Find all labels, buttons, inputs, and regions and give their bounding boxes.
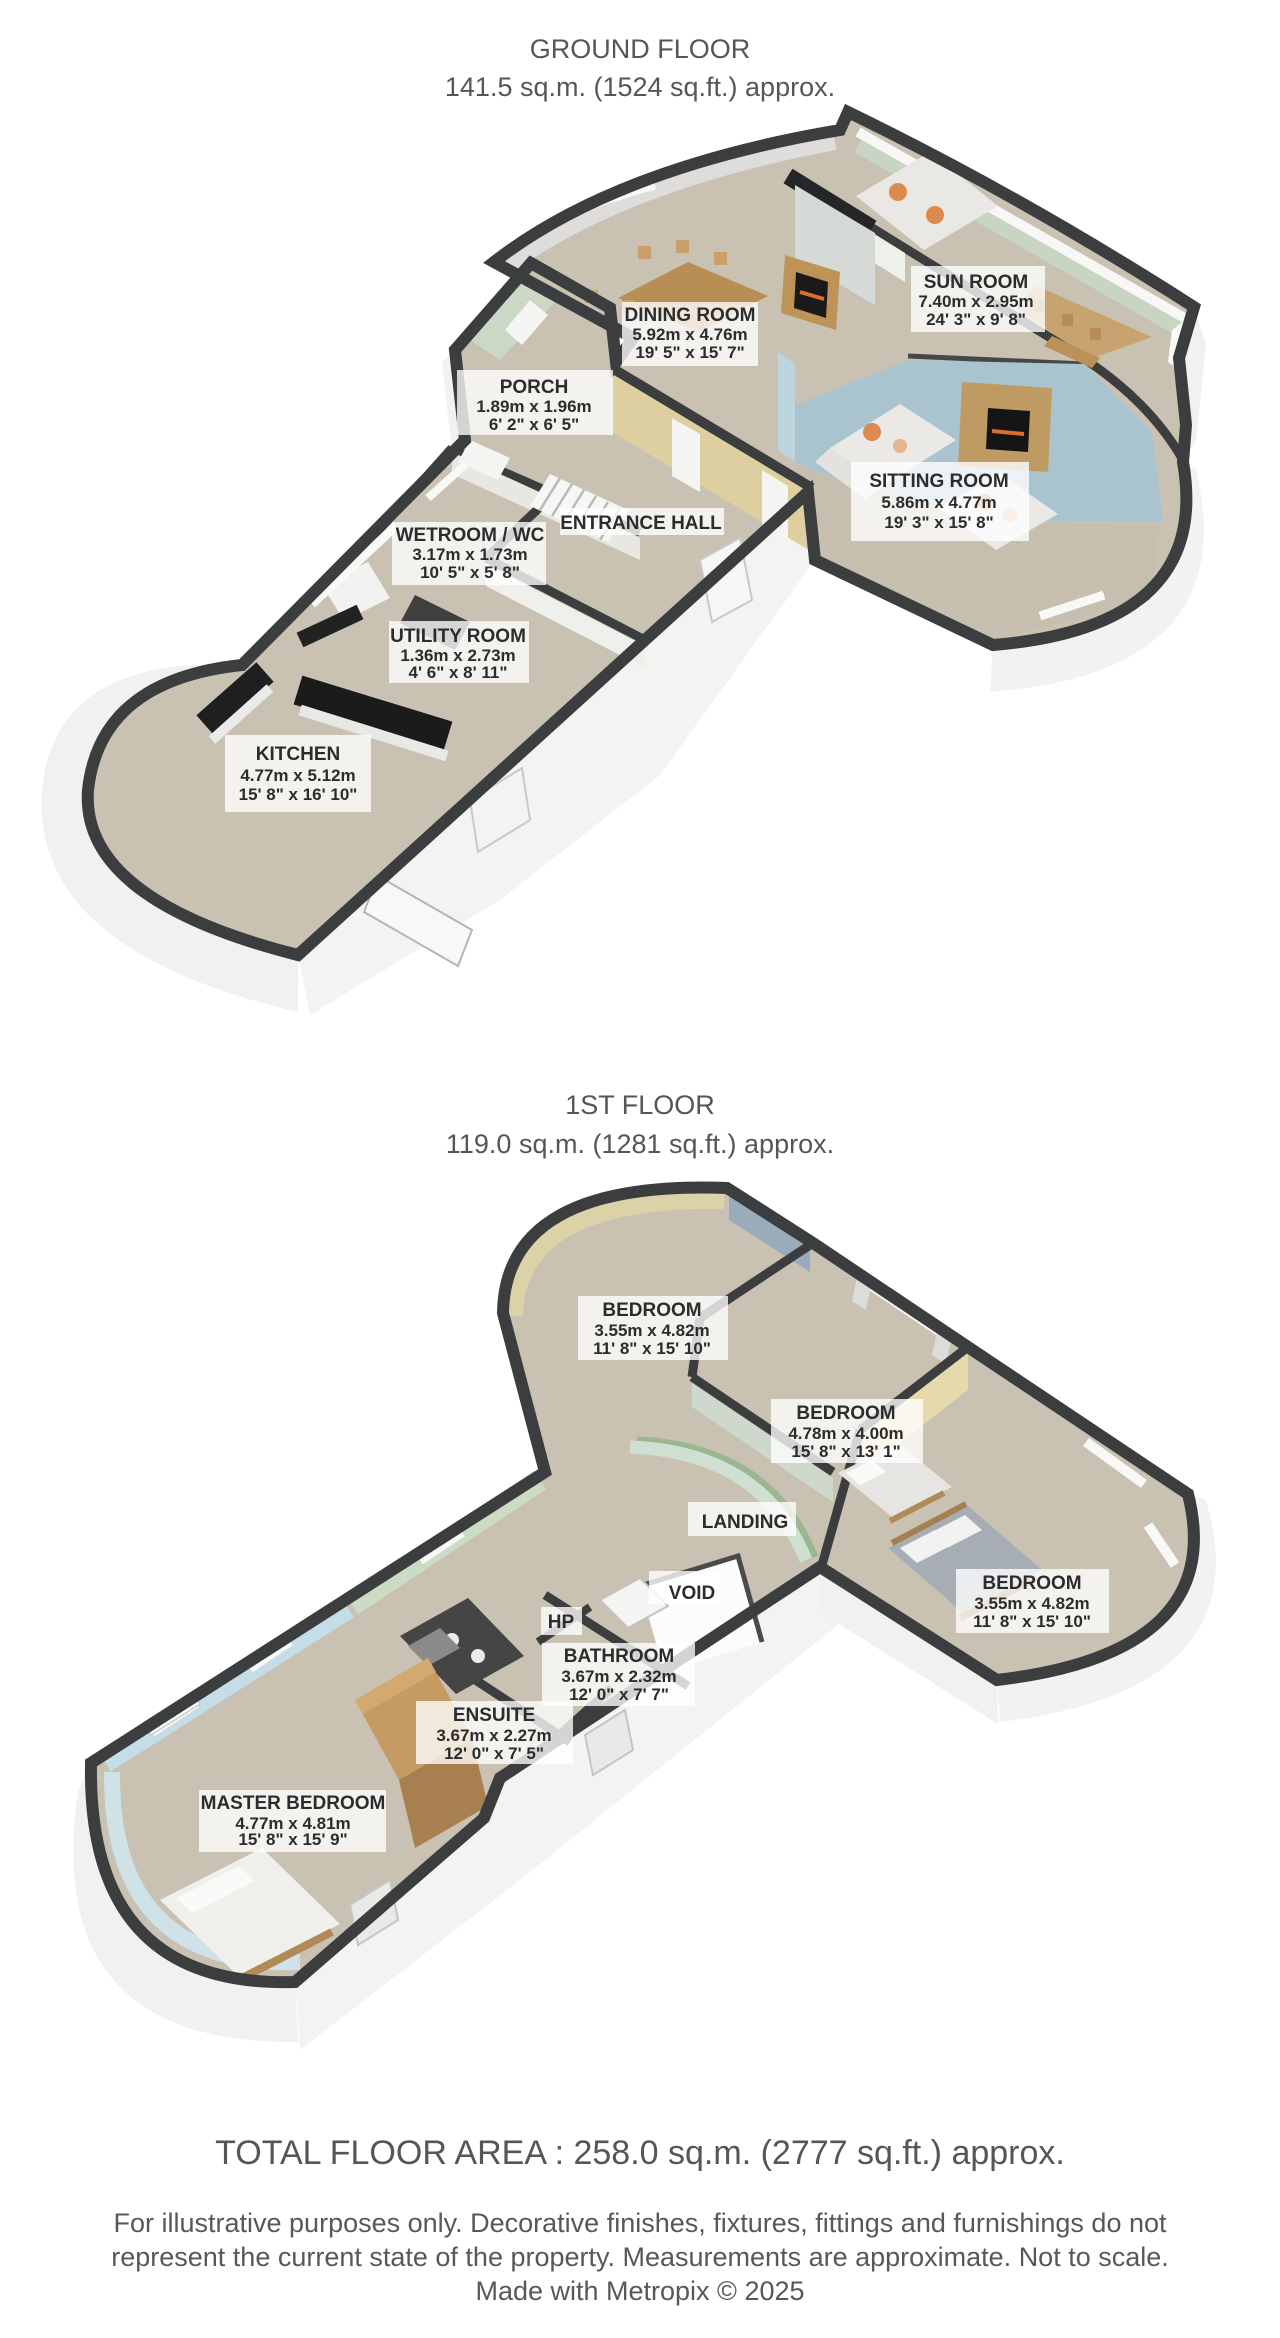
svg-text:11' 8" x 15' 10": 11' 8" x 15' 10": [593, 1339, 711, 1358]
svg-text:7.40m x 2.95m: 7.40m x 2.95m: [918, 292, 1033, 311]
svg-text:BEDROOM: BEDROOM: [796, 1403, 895, 1424]
svg-text:ENTRANCE HALL: ENTRANCE HALL: [560, 513, 722, 534]
svg-text:DINING ROOM: DINING ROOM: [625, 305, 756, 326]
svg-text:Made with Metropix © 2025: Made with Metropix © 2025: [475, 2276, 804, 2306]
svg-text:3.55m x 4.82m: 3.55m x 4.82m: [594, 1321, 709, 1340]
svg-text:4.78m x 4.00m: 4.78m x 4.00m: [788, 1424, 903, 1443]
svg-text:24' 3" x 9' 8": 24' 3" x 9' 8": [926, 310, 1026, 329]
svg-text:GROUND FLOOR: GROUND FLOOR: [530, 34, 751, 64]
svg-text:5.86m x 4.77m: 5.86m x 4.77m: [881, 493, 996, 512]
svg-text:ENSUITE: ENSUITE: [453, 1705, 535, 1726]
svg-text:3.67m x 2.32m: 3.67m x 2.32m: [561, 1667, 676, 1686]
svg-text:12' 0" x 7' 5": 12' 0" x 7' 5": [444, 1744, 544, 1763]
svg-text:15' 8" x 15' 9": 15' 8" x 15' 9": [238, 1830, 347, 1849]
svg-text:3.67m x 2.27m: 3.67m x 2.27m: [436, 1726, 551, 1745]
svg-text:For illustrative purposes only: For illustrative purposes only. Decorati…: [114, 2208, 1167, 2238]
svg-text:SITTING ROOM: SITTING ROOM: [869, 471, 1008, 492]
svg-text:11' 8" x 15' 10": 11' 8" x 15' 10": [973, 1612, 1091, 1631]
svg-text:3.55m x 4.82m: 3.55m x 4.82m: [974, 1594, 1089, 1613]
svg-text:1.89m x 1.96m: 1.89m x 1.96m: [476, 397, 591, 416]
svg-text:VOID: VOID: [669, 1583, 715, 1604]
svg-text:19' 3" x 15' 8": 19' 3" x 15' 8": [884, 513, 993, 532]
svg-text:10' 5" x 5' 8": 10' 5" x 5' 8": [420, 563, 520, 582]
svg-text:BEDROOM: BEDROOM: [602, 1300, 701, 1321]
svg-text:5.92m x 4.76m: 5.92m x 4.76m: [632, 325, 747, 344]
svg-text:UTILITY ROOM: UTILITY ROOM: [390, 626, 526, 647]
svg-text:LANDING: LANDING: [702, 1512, 789, 1533]
svg-text:KITCHEN: KITCHEN: [256, 744, 340, 765]
svg-text:BATHROOM: BATHROOM: [564, 1646, 674, 1667]
svg-text:4' 6" x 8' 11": 4' 6" x 8' 11": [409, 663, 508, 682]
svg-text:15' 8" x 13' 1": 15' 8" x 13' 1": [791, 1442, 900, 1461]
svg-text:BEDROOM: BEDROOM: [982, 1573, 1081, 1594]
svg-text:6' 2" x 6' 5": 6' 2" x 6' 5": [489, 415, 579, 434]
svg-text:4.77m x 5.12m: 4.77m x 5.12m: [240, 766, 355, 785]
svg-text:141.5 sq.m. (1524 sq.ft.) appr: 141.5 sq.m. (1524 sq.ft.) approx.: [445, 72, 835, 102]
svg-text:PORCH: PORCH: [500, 377, 569, 398]
svg-text:SUN ROOM: SUN ROOM: [924, 272, 1029, 293]
svg-text:MASTER BEDROOM: MASTER BEDROOM: [201, 1793, 386, 1814]
svg-text:3.17m x 1.73m: 3.17m x 1.73m: [412, 545, 527, 564]
svg-text:WETROOM / WC: WETROOM / WC: [396, 525, 545, 546]
svg-text:TOTAL FLOOR AREA : 258.0 sq.m.: TOTAL FLOOR AREA : 258.0 sq.m. (2777 sq.…: [215, 2134, 1065, 2172]
svg-text:HP: HP: [548, 1612, 575, 1633]
svg-text:12' 0" x 7' 7": 12' 0" x 7' 7": [569, 1685, 669, 1704]
svg-text:15' 8" x 16' 10": 15' 8" x 16' 10": [239, 785, 358, 804]
svg-text:19' 5" x 15' 7": 19' 5" x 15' 7": [635, 343, 744, 362]
svg-text:represent the current state of: represent the current state of the prope…: [111, 2242, 1169, 2272]
svg-text:1ST FLOOR: 1ST FLOOR: [565, 1090, 715, 1120]
svg-text:119.0 sq.m. (1281 sq.ft.) appr: 119.0 sq.m. (1281 sq.ft.) approx.: [446, 1129, 834, 1159]
